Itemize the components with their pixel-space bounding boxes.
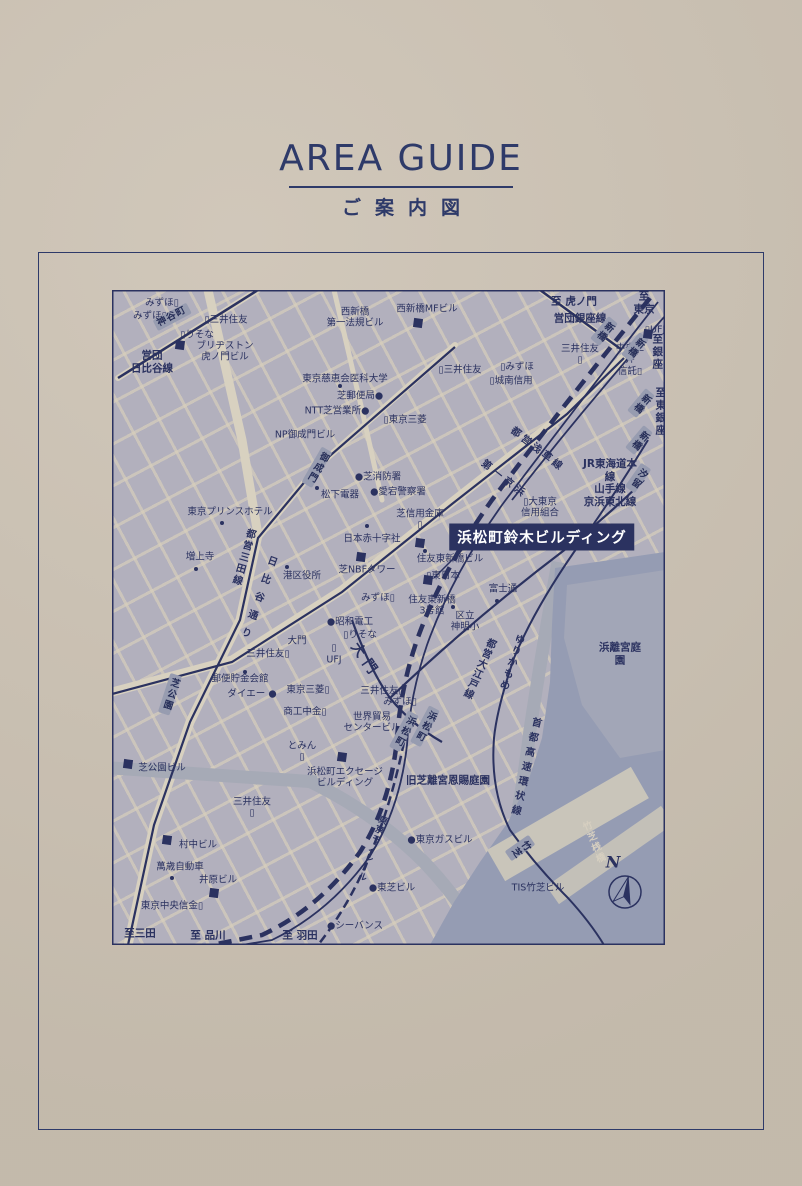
map-label: 松下電器 <box>321 489 359 500</box>
map-label: 新橋 <box>627 388 655 418</box>
building-marker <box>162 835 172 845</box>
map-label: ▯三井住友 <box>204 314 247 325</box>
map-labels: みずほ▯みずほ▯▯三井住友▯りそなブリヂストン 虎ノ門ビル営団 日比谷線神谷町西… <box>112 290 665 945</box>
map-label: 東京プリンスホテル <box>187 506 272 517</box>
map-label: 芝NBFタワー <box>338 564 395 575</box>
map-label: ●昭和電工 <box>327 616 373 627</box>
map-label: 商工中金▯ <box>283 706 326 717</box>
poi-dot-marker <box>194 567 198 571</box>
map-label: ブリヂストン 虎ノ門ビル <box>196 341 253 364</box>
map-label: ▯城南信用 <box>489 375 532 386</box>
map-label: 三井住友▯ <box>246 648 289 659</box>
map-label: NTT芝営業所● <box>305 405 370 416</box>
building-marker <box>337 752 347 762</box>
building-marker <box>643 329 653 339</box>
map-label: NP御成門ビル <box>275 429 335 440</box>
map-label: 東京慈恵会医科大学 <box>302 373 388 384</box>
page-title: AREA GUIDE <box>0 138 802 179</box>
map-label: みずほ▯ <box>145 297 179 308</box>
map-label: ▯東京三菱 <box>383 414 426 425</box>
map-label: 至 品川 <box>190 930 225 943</box>
map-label: 至 羽田 <box>282 930 317 943</box>
map-label: 増上寺 <box>186 551 215 562</box>
map-label: 御成門 <box>302 446 333 487</box>
poi-dot-marker <box>338 384 342 388</box>
map-label: 竹芝桟橋 <box>579 820 607 867</box>
poi-dot-marker <box>365 524 369 528</box>
area-map: みずほ▯みずほ▯▯三井住友▯りそなブリヂストン 虎ノ門ビル営団 日比谷線神谷町西… <box>112 290 665 945</box>
map-label: ●シーバンス <box>327 920 383 931</box>
map-label: 富士通 <box>489 583 518 594</box>
map-label: 都営浅草線 <box>508 425 567 474</box>
map-label: TIS竹芝ビル <box>512 882 565 893</box>
map-label: 至三田 <box>124 928 156 941</box>
map-label: ▯ <box>331 642 336 653</box>
compass-n-letter: N <box>606 852 621 871</box>
map-label: 都営大江戸線 <box>459 635 497 700</box>
map-label: 第一京浜 <box>478 458 530 502</box>
map-label: ●東京ガスビル <box>407 834 472 845</box>
map-label: JR東海道本線 山手線 京浜東北線 <box>583 458 638 508</box>
map-label: 新橋 <box>625 425 653 455</box>
map-label: 至銀座 <box>651 333 664 371</box>
map-label: 首都高速環状線 <box>506 715 541 820</box>
poi-dot-marker <box>170 876 174 880</box>
map-label: とみん ▯ <box>288 741 317 764</box>
building-marker <box>356 552 366 562</box>
map-label: 芝郵便局● <box>337 390 383 401</box>
page-root: AREA GUIDE ご案内図 <box>0 0 802 1186</box>
map-label: 浜松町 <box>410 705 440 746</box>
building-marker <box>423 575 433 585</box>
poi-dot-marker <box>495 599 499 603</box>
poi-dot-marker <box>285 565 289 569</box>
map-label: ダイエー ● <box>227 688 276 699</box>
map-label: ▯みずほ <box>500 361 534 372</box>
map-label: UFJ <box>326 654 341 665</box>
map-label: みずほ▯ <box>383 696 417 707</box>
highlighted-building-label: 浜松町鈴木ビルディング <box>449 524 634 551</box>
title-divider <box>289 186 513 188</box>
map-label: みずほ▯ <box>361 592 395 603</box>
map-label: 西新橋MFビル <box>396 303 457 314</box>
map-label: 世界貿易 センタービル <box>343 712 400 735</box>
map-label: 三井住友▯ <box>360 685 403 696</box>
map-label: 旧芝離宮恩賜庭園 <box>406 775 490 788</box>
map-label: 東京中央信金▯ <box>141 900 203 911</box>
map-label: 至 東京 <box>634 290 655 315</box>
map-label: 三井住友 ▯ <box>233 797 271 820</box>
map-label: 港区役所 <box>283 570 321 581</box>
map-label: 竹芝 <box>505 835 536 861</box>
map-label: 芝信用金庫 ▯ <box>396 509 444 532</box>
map-label: 東京三菱▯ <box>286 684 329 695</box>
map-label: 区立 神明小 <box>451 611 480 634</box>
map-label: 郵便貯金会館 <box>211 673 268 684</box>
map-label: 日本赤十字社 <box>343 533 400 544</box>
map-label: 三井住友 ▯ <box>561 344 599 367</box>
building-marker <box>123 759 133 769</box>
map-label: 至 虎ノ門 <box>551 296 597 309</box>
map-label: 営団銀座線 <box>554 313 607 326</box>
building-marker <box>209 888 219 898</box>
map-label: 芝公園 <box>158 673 182 715</box>
building-marker <box>175 340 185 350</box>
map-label: 村中ビル <box>179 839 217 850</box>
map-label: 東京モノレール <box>354 813 388 882</box>
map-label: 住友東新橋ビル <box>417 553 484 564</box>
map-label: ●愛宕警察署 <box>370 486 426 497</box>
poi-dot-marker <box>243 670 247 674</box>
map-label: 大門 <box>347 640 384 682</box>
map-label: 大門 <box>287 635 306 646</box>
poi-dot-marker <box>220 521 224 525</box>
building-marker <box>415 538 425 548</box>
map-label: 営団 日比谷線 <box>131 349 173 374</box>
map-label: ●芝消防署 <box>355 471 401 482</box>
map-label: 芝公園ビル <box>138 762 186 773</box>
building-marker <box>413 318 423 328</box>
map-label: 萬歳自動車 <box>156 861 204 872</box>
map-label: 浜松町エクセージ ビルディング <box>307 767 383 790</box>
poi-dot-marker <box>423 549 427 553</box>
poi-dot-marker <box>315 486 319 490</box>
map-label: ゆりかもめ <box>495 632 525 693</box>
map-label: 至東銀座 <box>654 387 665 437</box>
map-label: 都営三田線 <box>228 527 256 588</box>
page-subtitle: ご案内図 <box>0 193 802 220</box>
map-label: 浜離宮庭園 <box>598 641 643 666</box>
map-label: ●東芝ビル <box>369 882 415 893</box>
map-label: 西新橋 第一法規ビル <box>326 307 383 330</box>
map-label: ▯大東京 信用組合 <box>521 497 559 520</box>
map-label: ▯りそな <box>180 329 214 340</box>
map-label: 井原ビル <box>199 874 237 885</box>
map-label: ▯三井住友 <box>438 364 481 375</box>
poi-dot-marker <box>451 605 455 609</box>
map-label: 住友東新橋 3号館 <box>408 595 456 618</box>
